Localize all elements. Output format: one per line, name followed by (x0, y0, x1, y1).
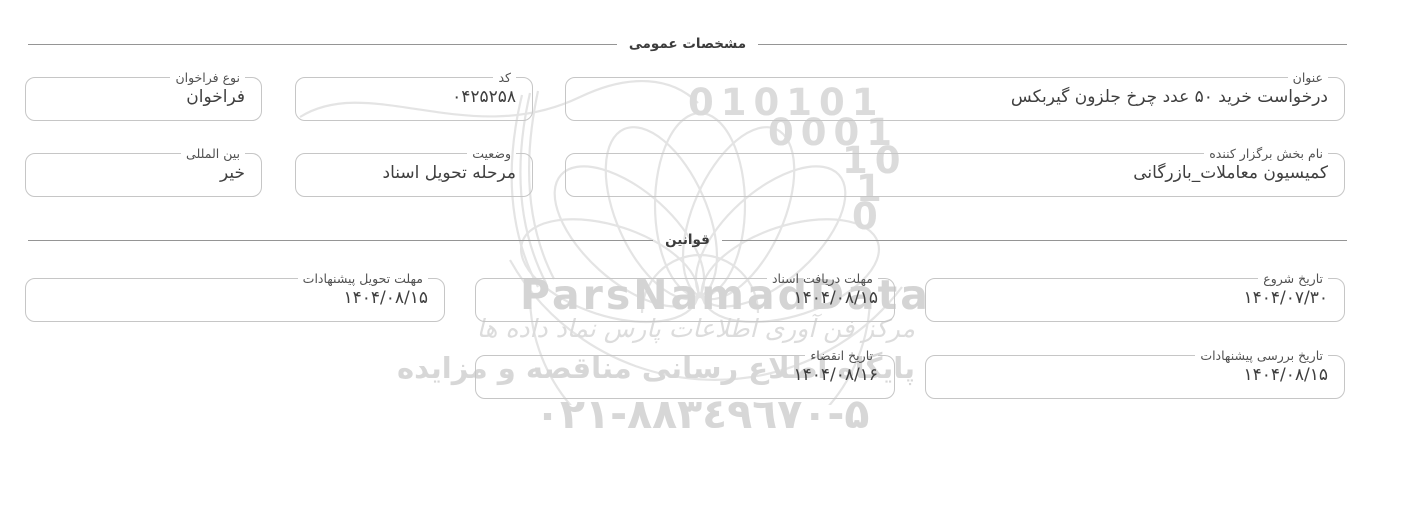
tender-detail-page: 010101 0001 10 1 0 ParsNamadData مرکز فن… (0, 0, 1402, 511)
field-call-type-value: فراخوان (34, 85, 253, 107)
divider-line (758, 44, 1347, 45)
field-doc-deadline-label: مهلت دریافت اسناد (767, 271, 878, 286)
watermark-binary-text: 0 (852, 198, 885, 235)
field-start-date: تاریخ شروع ۱۴۰۴/۰۷/۳۰ (925, 271, 1345, 322)
section-title-rules: قوانین (665, 232, 710, 248)
field-call-type-label: نوع فراخوان (170, 70, 245, 85)
divider-line (28, 44, 617, 45)
field-international: بین المللی خیر (25, 146, 262, 197)
field-organizer-value: کمیسیون معاملات_بازرگانی (574, 161, 1336, 183)
field-title-value: درخواست خرید ۵۰ عدد چرخ جلزون گیربکس (574, 85, 1336, 107)
field-title: عنوان درخواست خرید ۵۰ عدد چرخ جلزون گیرب… (565, 70, 1345, 121)
section-title-general: مشخصات عمومی (629, 36, 746, 52)
field-review-date: تاریخ بررسی پیشنهادات ۱۴۰۴/۰۸/۱۵ (925, 348, 1345, 399)
divider-line (722, 240, 1347, 241)
field-organizer: نام بخش برگزار کننده کمیسیون معاملات_باز… (565, 146, 1345, 197)
field-code: کد ۰۴۲۵۲۵۸ (295, 70, 533, 121)
field-international-label: بین المللی (181, 146, 245, 161)
field-proposal-deadline: مهلت تحویل پیشنهادات ۱۴۰۴/۰۸/۱۵ (25, 271, 445, 322)
field-review-date-label: تاریخ بررسی پیشنهادات (1195, 348, 1328, 363)
divider-line (28, 240, 653, 241)
field-review-date-value: ۱۴۰۴/۰۸/۱۵ (934, 363, 1336, 385)
field-status-value: مرحله تحویل اسناد (304, 161, 524, 183)
field-start-date-value: ۱۴۰۴/۰۷/۳۰ (934, 286, 1336, 308)
section-divider-rules: قوانین (28, 232, 1347, 248)
field-expiry-date-label: تاریخ انقضاء (805, 348, 878, 363)
field-status-label: وضعیت (467, 146, 516, 161)
field-organizer-label: نام بخش برگزار کننده (1204, 146, 1328, 161)
field-start-date-label: تاریخ شروع (1258, 271, 1328, 286)
field-call-type: نوع فراخوان فراخوان (25, 70, 262, 121)
field-doc-deadline: مهلت دریافت اسناد ۱۴۰۴/۰۸/۱۵ (475, 271, 895, 322)
field-expiry-date: تاریخ انقضاء ۱۴۰۴/۰۸/۱۶ (475, 348, 895, 399)
field-code-label: کد (493, 70, 516, 85)
section-divider-general: مشخصات عمومی (28, 36, 1347, 52)
field-code-value: ۰۴۲۵۲۵۸ (304, 85, 524, 107)
field-proposal-deadline-label: مهلت تحویل پیشنهادات (298, 271, 428, 286)
field-international-value: خیر (34, 161, 253, 183)
field-proposal-deadline-value: ۱۴۰۴/۰۸/۱۵ (34, 286, 436, 308)
field-title-label: عنوان (1288, 70, 1328, 85)
field-expiry-date-value: ۱۴۰۴/۰۸/۱۶ (484, 363, 886, 385)
field-status: وضعیت مرحله تحویل اسناد (295, 146, 533, 197)
field-doc-deadline-value: ۱۴۰۴/۰۸/۱۵ (484, 286, 886, 308)
